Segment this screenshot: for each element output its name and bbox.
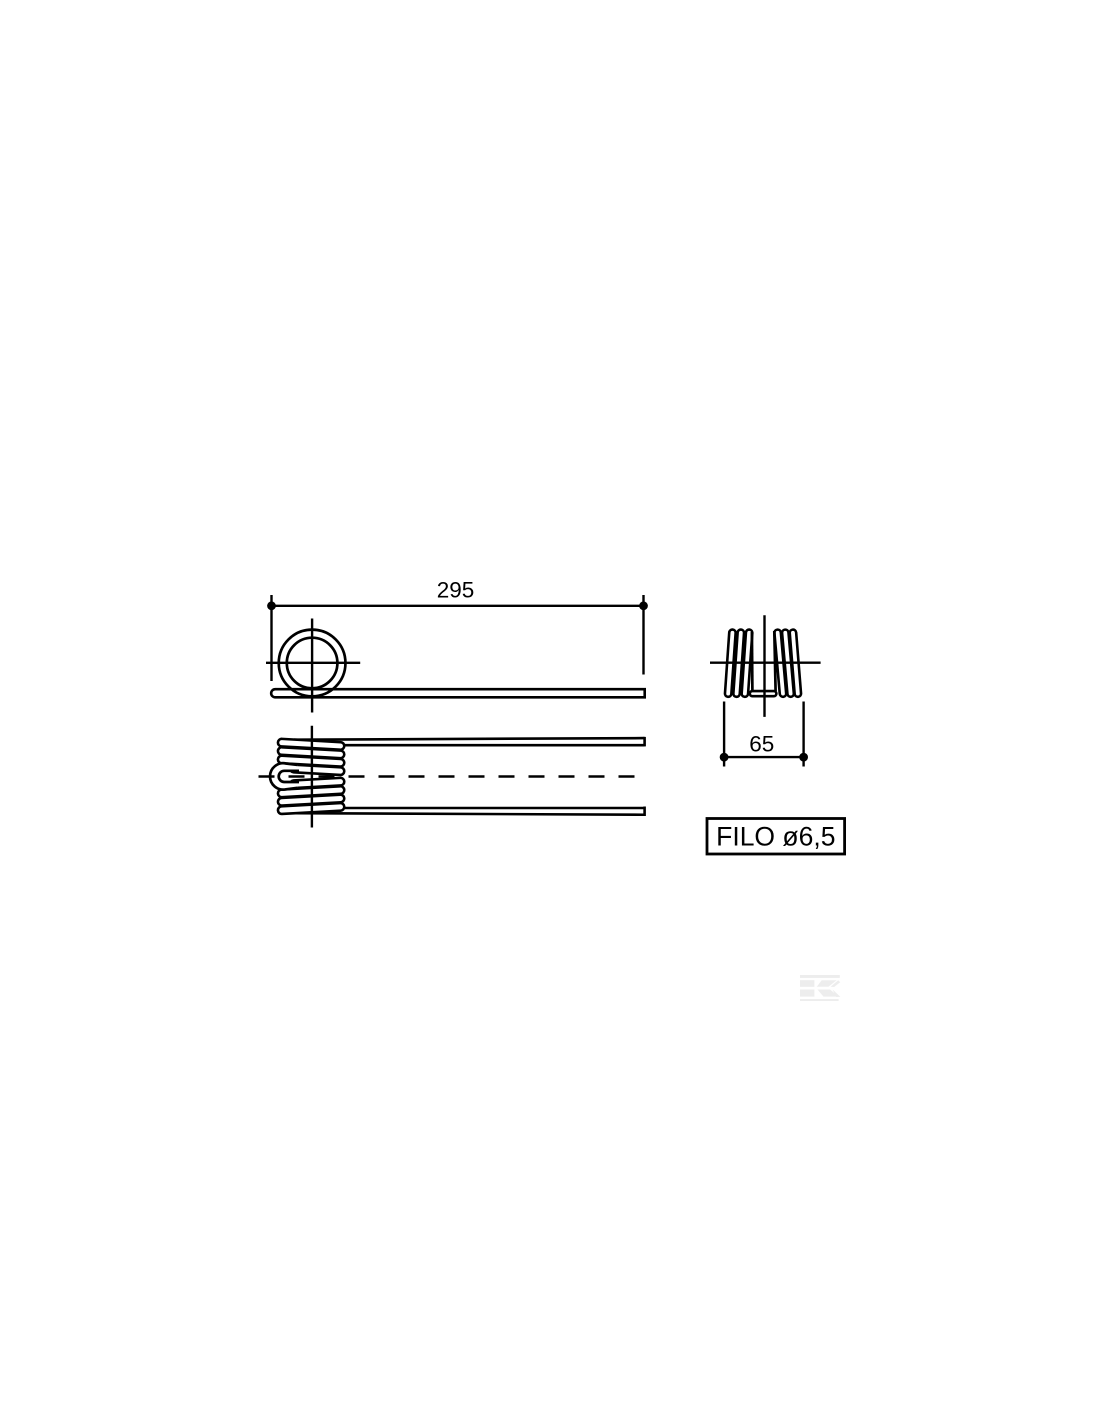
svg-text:FILO ø6,5: FILO ø6,5 [716, 821, 835, 851]
svg-text:295: 295 [437, 578, 475, 603]
svg-text:65: 65 [749, 732, 774, 757]
